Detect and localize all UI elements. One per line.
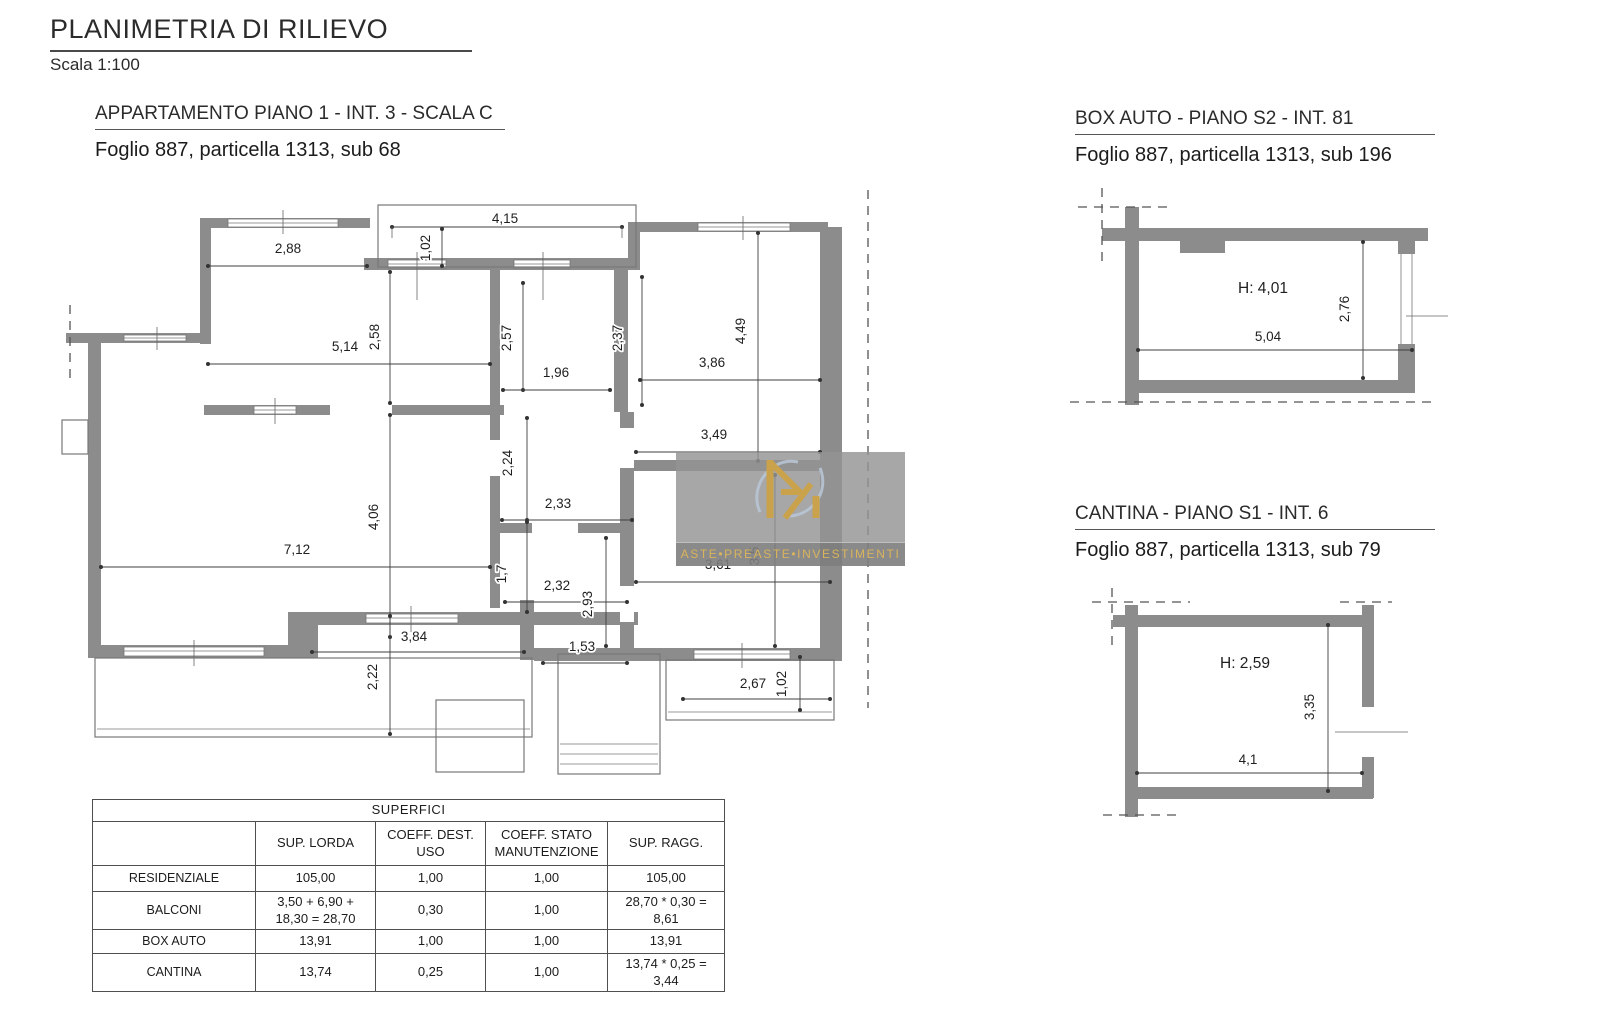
cell-sup-ragg: 105,00 [608,866,725,892]
dim-2-22: 2,22 [365,664,380,690]
scanned-floorplan-page: PLANIMETRIA DI RILIEVO Scala 1:100 APPAR… [0,0,1600,1027]
dim-1-53: 1,53 [569,639,595,654]
table-title: SUPERFICI [93,800,725,822]
dim-2-32: 2,32 [544,578,570,593]
superfici-table: SUPERFICI SUP. LORDA COEFF. DEST. USO CO… [92,799,725,992]
cell-sup-lorda: 13,91 [256,930,376,954]
cell-coeff-stato: 1,00 [486,954,608,992]
dim-2-67: 2,67 [740,676,766,691]
cantina-walls [1113,605,1408,817]
watermark: ASTE•PREASTE•INVESTIMENTI [676,452,905,566]
boxauto-title: BOX AUTO - PIANO S2 - INT. 81 [1075,108,1435,135]
cell-sup-ragg: 28,70 * 0,30 = 8,61 [608,892,725,930]
row-label: BALCONI [93,892,256,930]
cell-coeff-uso: 1,00 [376,930,486,954]
title-block: PLANIMETRIA DI RILIEVO Scala 1:100 [50,14,472,75]
cell-coeff-uso: 0,30 [376,892,486,930]
row-label: BOX AUTO [93,930,256,954]
boxauto-floor-plan: H: 4,01 2,76 5,04 [1060,180,1450,420]
row-label: CANTINA [93,954,256,992]
cell-sup-lorda: 105,00 [256,866,376,892]
dim-2-58: 2,58 [367,324,382,350]
dim-2-57: 2,57 [499,325,514,351]
dim-2-37: 2,37 [610,325,625,351]
boxauto-width-label: 5,04 [1255,329,1282,344]
cantina-dimensions: H: 2,59 3,35 4,1 [1137,625,1362,791]
apartment-windows [124,210,790,668]
dim-4-49: 4,49 [733,318,748,344]
cell-coeff-uso: 1,00 [376,866,486,892]
cantina-title: CANTINA - PIANO S1 - INT. 6 [1075,503,1435,530]
dim-2-24: 2,24 [500,449,515,476]
watermark-text: ASTE•PREASTE•INVESTIMENTI [676,542,905,566]
cantina-width-label: 4,1 [1239,752,1258,767]
dim-1-96: 1,96 [543,365,569,380]
col-header-coeff-dest-uso: COEFF. DEST. USO [376,822,486,866]
dim-4-15: 4,15 [492,211,518,226]
dim-4-06: 4,06 [366,504,381,530]
col-header-empty [93,822,256,866]
cell-sup-lorda: 3,50 + 6,90 + 18,30 = 28,70 [256,892,376,930]
col-header-coeff-stato: COEFF. STATO MANUTENZIONE [486,822,608,866]
apartment-header: APPARTAMENTO PIANO 1 - INT. 3 - SCALA C … [95,103,505,162]
dim-2-88: 2,88 [275,241,301,256]
boxauto-depth-label: 2,76 [1337,296,1352,322]
dim-1-02-top: 1,02 [418,235,433,261]
cell-sup-ragg: 13,74 * 0,25 = 3,44 [608,954,725,992]
apartment-title: APPARTAMENTO PIANO 1 - INT. 3 - SCALA C [95,103,505,130]
cantina-cadastre: Foglio 887, particella 1313, sub 79 [1075,539,1435,562]
scale-label: Scala 1:100 [50,55,472,75]
boxauto-dimensions: H: 4,01 2,76 5,04 [1138,242,1412,378]
cantina-floor-plan: H: 2,59 3,35 4,1 [1060,575,1450,835]
cell-sup-ragg: 13,91 [608,930,725,954]
boxauto-walls [1102,207,1448,405]
cantina-height-label: H: 2,59 [1220,655,1270,672]
cell-coeff-stato: 1,00 [486,892,608,930]
dim-5-14: 5,14 [332,339,359,354]
table-row-balconi: BALCONI 3,50 + 6,90 + 18,30 = 28,70 0,30… [93,892,725,930]
dim-3-84: 3,84 [401,629,428,644]
apartment-cadastre: Foglio 887, particella 1313, sub 68 [95,139,505,162]
dim-7-12: 7,12 [284,542,310,557]
cantina-header: CANTINA - PIANO S1 - INT. 6 Foglio 887, … [1075,503,1435,562]
cell-coeff-stato: 1,00 [486,930,608,954]
row-label: RESIDENZIALE [93,866,256,892]
boxauto-height-label: H: 4,01 [1238,280,1288,297]
page-title: PLANIMETRIA DI RILIEVO [50,14,472,52]
boxauto-header: BOX AUTO - PIANO S2 - INT. 81 Foglio 887… [1075,108,1435,167]
dim-1-7: 1,7 [494,565,509,584]
dim-2-33: 2,33 [545,496,571,511]
cantina-depth-label: 3,35 [1302,694,1317,720]
dim-3-49: 3,49 [701,427,727,442]
col-header-sup-ragg: SUP. RAGG. [608,822,725,866]
cell-sup-lorda: 13,74 [256,954,376,992]
table-row-cantina: CANTINA 13,74 0,25 1,00 13,74 * 0,25 = 3… [93,954,725,992]
dim-2-93: 2,93 [580,591,595,617]
table-row-box-auto: BOX AUTO 13,91 1,00 1,00 13,91 [93,930,725,954]
cell-coeff-uso: 0,25 [376,954,486,992]
dim-3-86: 3,86 [699,355,725,370]
boxauto-cadastre: Foglio 887, particella 1313, sub 196 [1075,144,1435,167]
table-row-residenziale: RESIDENZIALE 105,00 1,00 1,00 105,00 [93,866,725,892]
col-header-sup-lorda: SUP. LORDA [256,822,376,866]
cell-coeff-stato: 1,00 [486,866,608,892]
watermark-logo [754,454,828,522]
dim-1-02-bottom: 1,02 [774,671,789,697]
